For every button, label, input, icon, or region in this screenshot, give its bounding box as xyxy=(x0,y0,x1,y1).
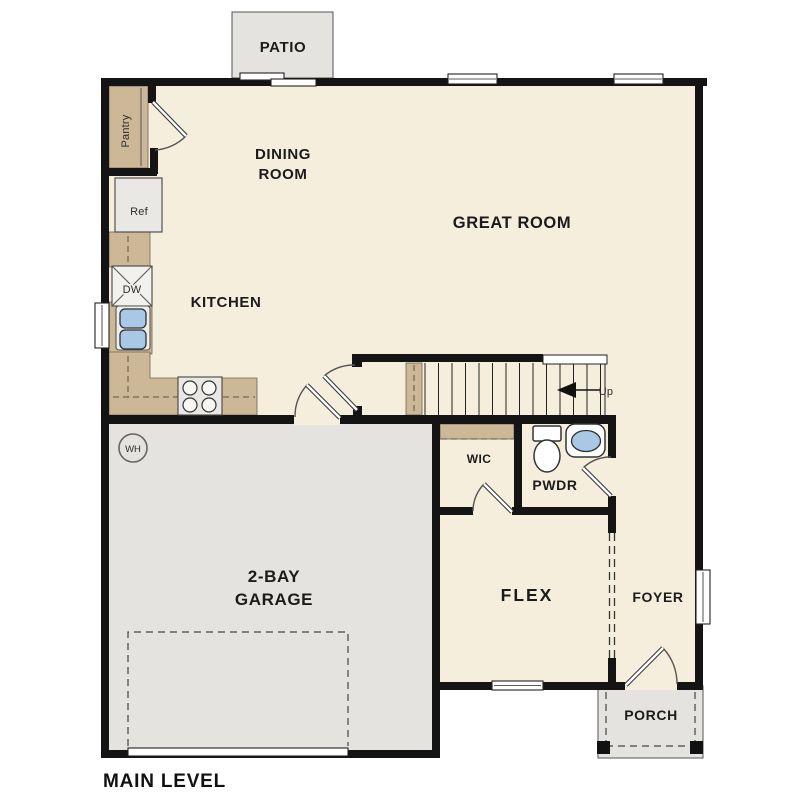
garage-entry-opening xyxy=(294,414,340,425)
stair-landing-edge xyxy=(543,355,607,364)
fixture-label-pantry: Pantry xyxy=(120,114,132,147)
room-label-pwdr: PWDR xyxy=(532,477,577,493)
wall-wic-pwdr-divider xyxy=(514,415,522,515)
stair-label-up: Up xyxy=(599,386,613,398)
floor-plan: PATIO DINING ROOM GREAT ROOM KITCHEN 2-B… xyxy=(0,0,810,810)
counter-segment xyxy=(109,232,150,267)
fixture-label-ref: Ref xyxy=(130,206,148,218)
wall-pwdr-right-upper xyxy=(608,415,616,458)
sink-basin-icon xyxy=(572,431,601,452)
room-label-porch: PORCH xyxy=(624,707,678,723)
garage-vehicle-door xyxy=(128,748,348,756)
room-label-dining-1: DINING xyxy=(255,146,311,163)
wall-pantry-jamb-bottom xyxy=(150,148,158,174)
toilet-tank xyxy=(533,426,561,441)
toilet-icon xyxy=(534,440,560,472)
wall-garage-right xyxy=(432,415,440,758)
patio-slider-door xyxy=(271,79,316,86)
floor-plan-page: PATIO DINING ROOM GREAT ROOM KITCHEN 2-B… xyxy=(0,0,810,810)
fixture-label-dw: DW xyxy=(123,284,142,296)
room-label-foyer: FOYER xyxy=(632,589,683,605)
room-label-garage-1: 2-BAY xyxy=(248,567,301,586)
fixture-label-wh: WH xyxy=(125,444,141,455)
wall-foyer-bottom xyxy=(677,682,703,690)
room-label-wic: WIC xyxy=(467,452,492,466)
wall-foyer-stub xyxy=(608,658,616,690)
wic-shelf xyxy=(440,424,514,439)
room-label-great-room: GREAT ROOM xyxy=(453,214,571,232)
plan-title: MAIN LEVEL xyxy=(103,771,226,792)
wall-flex-top xyxy=(432,507,616,515)
room-label-patio: PATIO xyxy=(260,39,307,56)
room-label-garage-2: GARAGE xyxy=(235,590,313,609)
wall-stair-top xyxy=(352,354,543,362)
garage-floor xyxy=(109,424,432,750)
wall-pantry-jamb-top xyxy=(148,86,156,103)
room-label-dining-2: ROOM xyxy=(258,166,307,183)
refrigerator-icon xyxy=(115,178,162,232)
room-label-flex: FLEX xyxy=(501,585,554,605)
wall-pantry-bottom xyxy=(101,168,157,176)
room-label-kitchen: KITCHEN xyxy=(191,294,262,311)
